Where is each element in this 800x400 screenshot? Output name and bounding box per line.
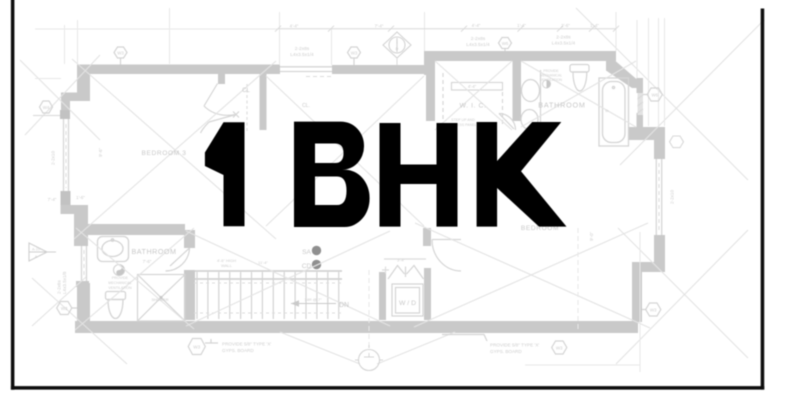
svg-text:W3: W3 bbox=[117, 51, 124, 56]
svg-text:L4x3.5x1/8: L4x3.5x1/8 bbox=[62, 271, 67, 294]
svg-text:2-2x8s: 2-2x8s bbox=[556, 35, 571, 41]
svg-text:W6: W6 bbox=[502, 41, 509, 46]
svg-text:PROVIDE: PROVIDE bbox=[112, 276, 129, 280]
svg-text:L4x3.5x1/4: L4x3.5x1/4 bbox=[466, 42, 490, 48]
svg-text:W / D: W / D bbox=[399, 300, 416, 307]
svg-text:A: A bbox=[35, 255, 38, 259]
svg-text:MECHANICAL: MECHANICAL bbox=[108, 281, 132, 285]
svg-text:1: 1 bbox=[396, 39, 399, 44]
svg-text:SHOWER: SHOWER bbox=[151, 298, 168, 302]
svg-text:D: D bbox=[396, 46, 399, 51]
svg-text:W3: W3 bbox=[193, 345, 200, 350]
svg-text:GYPS. BOARD: GYPS. BOARD bbox=[222, 348, 254, 353]
svg-text:14R @ 7": 14R @ 7" bbox=[304, 297, 322, 302]
svg-text:W. I. C.: W. I. C. bbox=[459, 103, 486, 110]
svg-text:4'-4": 4'-4" bbox=[472, 23, 481, 28]
svg-text:W4: W4 bbox=[43, 105, 50, 110]
svg-text:PROVIDE 5/8" TYPE 'X': PROVIDE 5/8" TYPE 'X' bbox=[490, 343, 539, 348]
svg-text:VENTILATION: VENTILATION bbox=[540, 78, 563, 82]
svg-text:4'-4": 4'-4" bbox=[468, 84, 477, 89]
svg-text:W3: W3 bbox=[351, 51, 358, 56]
svg-text:9'-0": 9'-0" bbox=[589, 231, 594, 241]
svg-text:tb: tb bbox=[605, 109, 608, 113]
svg-text:MECHANICAL: MECHANICAL bbox=[540, 74, 562, 78]
svg-text:7'-4": 7'-4" bbox=[48, 197, 57, 202]
svg-text:L4x3.5x1/4: L4x3.5x1/4 bbox=[290, 52, 314, 58]
svg-text:W3: W3 bbox=[556, 346, 563, 351]
svg-text:L4x3.5x1/4: L4x3.5x1/4 bbox=[552, 41, 576, 47]
svg-text:2-2x6s: 2-2x6s bbox=[57, 280, 62, 294]
svg-text:PROVIDE 5/8" TYPE 'X': PROVIDE 5/8" TYPE 'X' bbox=[222, 342, 271, 347]
svg-text:W3: W3 bbox=[61, 306, 68, 311]
svg-text:CL.: CL. bbox=[302, 103, 310, 109]
svg-text:W6: W6 bbox=[652, 93, 659, 98]
svg-text:2-2x8s: 2-2x8s bbox=[295, 46, 310, 52]
svg-text:PROVIDE: PROVIDE bbox=[543, 69, 559, 73]
svg-text:CL: CL bbox=[242, 88, 250, 94]
svg-text:W3: W3 bbox=[650, 308, 657, 313]
svg-text:11'-4": 11'-4" bbox=[258, 260, 268, 265]
svg-text:CD: CD bbox=[302, 263, 312, 270]
svg-text:VENTILATION: VENTILATION bbox=[108, 286, 132, 290]
svg-text:4'-4": 4'-4" bbox=[290, 24, 299, 29]
svg-text:2-2x10: 2-2x10 bbox=[670, 190, 675, 204]
svg-text:GYPS. BOARD: GYPS. BOARD bbox=[490, 349, 522, 354]
svg-text:WALL: WALL bbox=[221, 263, 233, 268]
svg-text:BEDROOM 3: BEDROOM 3 bbox=[142, 150, 187, 157]
svg-text:7'-6": 7'-6" bbox=[143, 259, 152, 264]
svg-text:DN: DN bbox=[339, 302, 349, 309]
svg-text:2'-6": 2'-6" bbox=[561, 23, 570, 28]
svg-text:BATHROOM: BATHROOM bbox=[538, 101, 585, 110]
svg-text:STEP UP AND: STEP UP AND bbox=[451, 118, 475, 122]
svg-text:A-10: A-10 bbox=[32, 248, 40, 252]
svg-text:BATHROOM: BATHROOM bbox=[132, 247, 177, 256]
svg-text:1'-4": 1'-4" bbox=[590, 23, 599, 28]
svg-text:1'-4": 1'-4" bbox=[517, 23, 526, 28]
svg-text:SA: SA bbox=[302, 249, 311, 256]
svg-text:3'-4": 3'-4" bbox=[397, 258, 406, 263]
svg-text:1'-6": 1'-6" bbox=[76, 195, 85, 200]
svg-text:2-2x8s: 2-2x8s bbox=[471, 36, 486, 42]
svg-text:7'-4": 7'-4" bbox=[375, 24, 384, 29]
svg-text:9'-6": 9'-6" bbox=[98, 147, 103, 157]
svg-text:2-2x10: 2-2x10 bbox=[51, 151, 56, 165]
